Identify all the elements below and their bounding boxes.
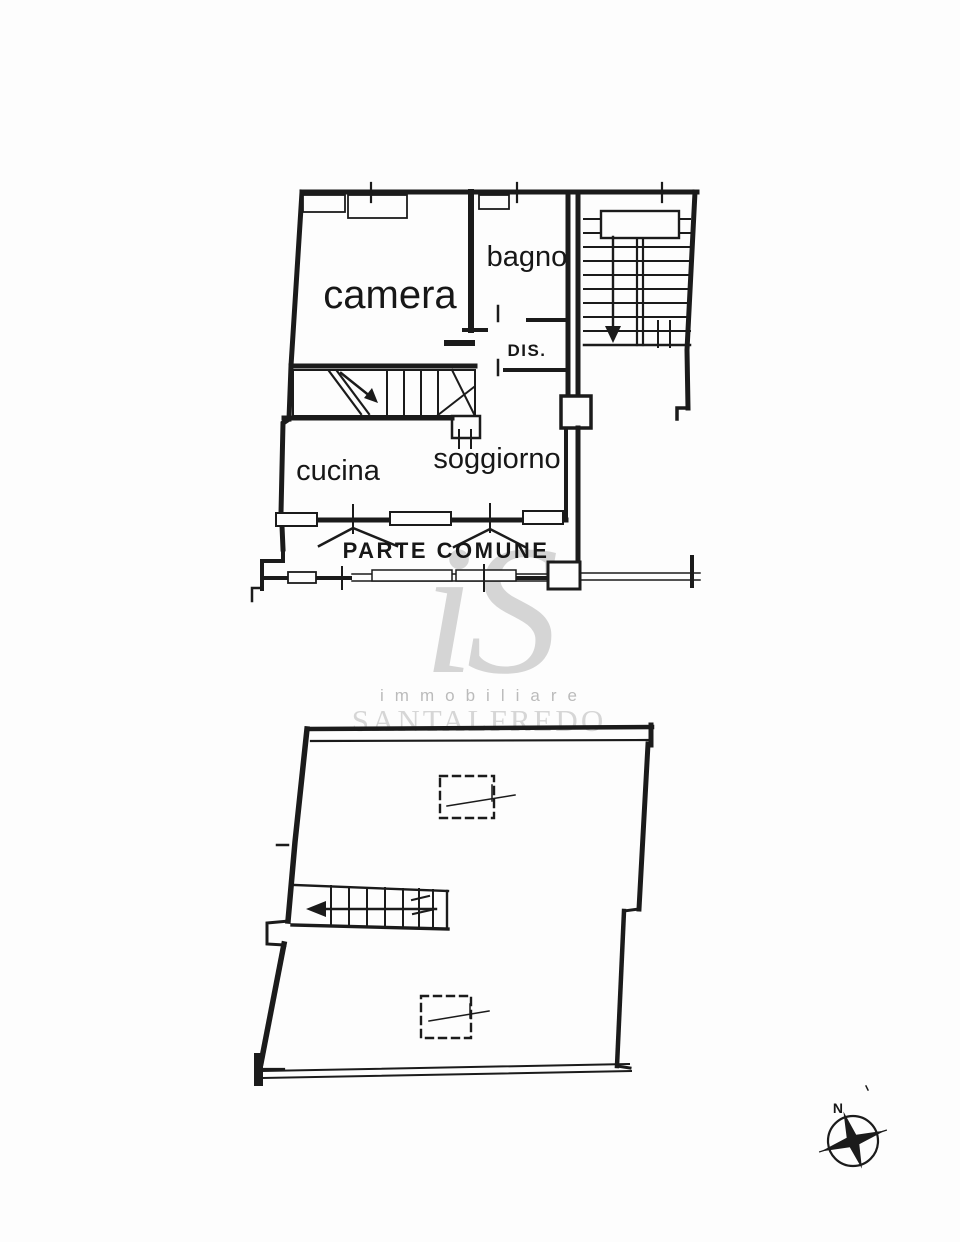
corridor-opening	[456, 570, 516, 581]
stairwell-wall-foot	[677, 408, 688, 419]
floor-plan-drawing: iS immobiliare SANTALFREDO	[0, 0, 960, 1242]
window-recess	[348, 195, 407, 218]
window	[390, 512, 451, 525]
attic-staircase	[292, 885, 448, 929]
stair-winders	[438, 370, 474, 415]
upper-left-wall	[289, 192, 302, 419]
room-label-cucina: cucina	[296, 455, 381, 487]
stair-steps	[331, 886, 433, 929]
room-label-camera: camera	[323, 273, 457, 317]
stair-top-edge	[294, 885, 448, 891]
attic-right-foot	[617, 1066, 630, 1068]
stair-steps	[387, 370, 438, 416]
corridor-window	[288, 572, 316, 583]
stair-arrow-head	[605, 326, 621, 343]
window-recess	[303, 195, 345, 212]
skylight-annotation	[429, 1004, 489, 1021]
upper-left-wall-lower	[281, 419, 289, 549]
skylight-annotation	[447, 785, 515, 806]
compass-north-label: N	[833, 1100, 843, 1116]
corridor-left-step	[262, 549, 283, 589]
window	[523, 511, 563, 524]
compass-rose: N	[810, 1086, 895, 1179]
watermark-brand: SANTALFREDO	[352, 703, 606, 738]
compass-star-shape	[811, 1101, 894, 1179]
window	[276, 513, 317, 526]
skylight-outline	[421, 996, 471, 1038]
room-label-bagno: bagno	[487, 241, 568, 273]
internal-staircase	[284, 366, 480, 448]
corridor-opening	[372, 570, 452, 581]
stair-hatch	[329, 371, 369, 414]
room-label-dis: DIS.	[507, 341, 546, 360]
attic-bottom-wall	[263, 1064, 631, 1078]
lower-floor-plan	[254, 725, 652, 1086]
skylight-outline	[440, 776, 494, 818]
room-label-soggiorno: soggiorno	[433, 443, 560, 475]
attic-left-bottom-cap	[254, 1053, 263, 1086]
attic-top-wall-inner	[311, 740, 649, 741]
attic-left-notch	[267, 921, 289, 945]
attic-right-wall-lower	[617, 911, 624, 1066]
compass-star	[810, 1101, 895, 1180]
corridor-pillar	[548, 562, 580, 589]
stair-outline	[293, 370, 475, 416]
label-parte-comune: PARTE COMUNE	[343, 538, 550, 563]
common-stairwell	[584, 211, 690, 347]
stair-arrow-head	[306, 901, 326, 917]
stair-landing	[601, 211, 679, 238]
wall-pillar	[561, 396, 591, 428]
window-recess	[479, 195, 509, 209]
attic-right-wall	[639, 744, 648, 909]
stair-tick-marks	[658, 321, 670, 347]
attic-left-wall-lower	[261, 944, 284, 1063]
stairwell-right-wall	[687, 192, 695, 408]
upper-floor-plan: camera bagno DIS. cucina soggiorno PARTE…	[252, 183, 700, 601]
skylight-lower	[421, 996, 489, 1038]
attic-left-wall	[288, 729, 307, 921]
stair-lower-landing	[452, 416, 480, 438]
stair-arrow-head	[364, 388, 378, 403]
attic-top-wall	[307, 727, 652, 729]
corridor-railing	[580, 573, 700, 580]
skylight-upper	[440, 776, 515, 818]
compass-mark	[866, 1086, 868, 1090]
floor-plan-page: iS immobiliare SANTALFREDO	[0, 0, 960, 1242]
stair-bottom-edge	[292, 925, 448, 929]
stair-tick-marks	[412, 896, 431, 914]
